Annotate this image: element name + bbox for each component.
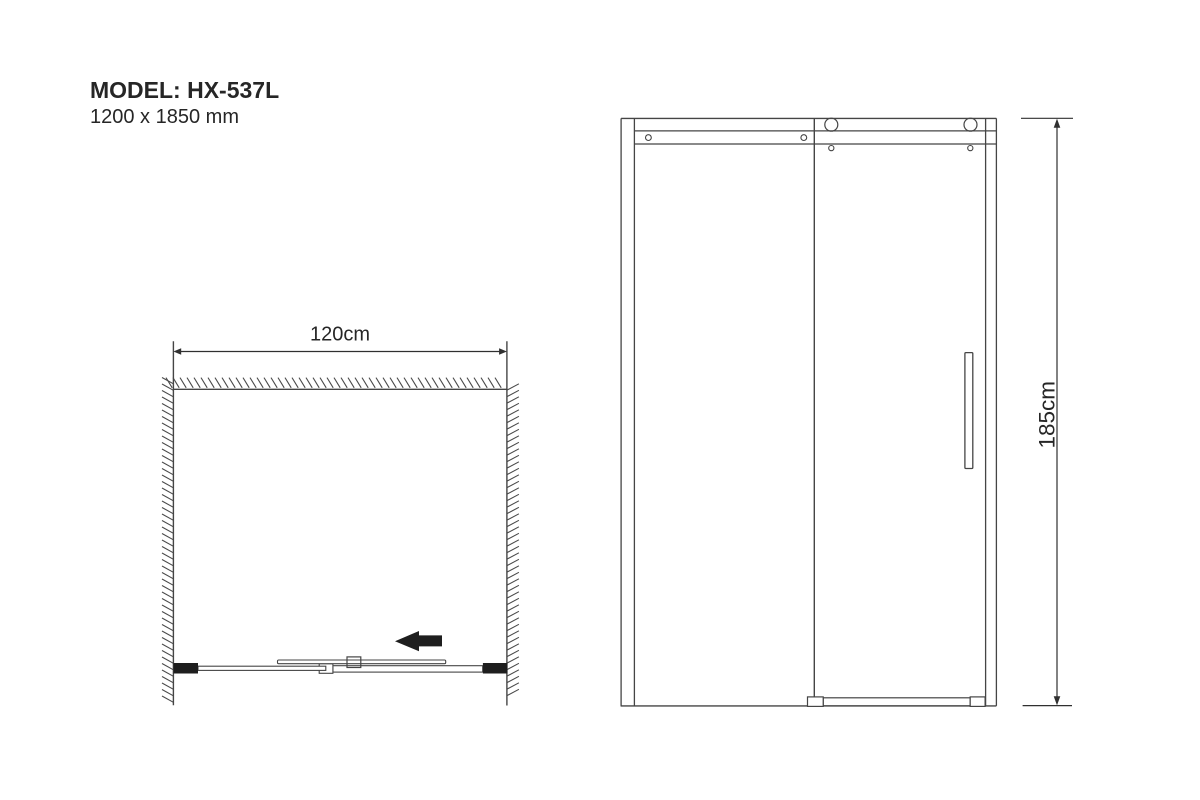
svg-text:1200 x 1850 mm: 1200 x 1850 mm — [90, 106, 239, 128]
svg-text:185cm: 185cm — [1035, 381, 1060, 449]
svg-text:120cm: 120cm — [310, 324, 370, 346]
svg-text:MODEL: HX-537L: MODEL: HX-537L — [90, 77, 279, 103]
